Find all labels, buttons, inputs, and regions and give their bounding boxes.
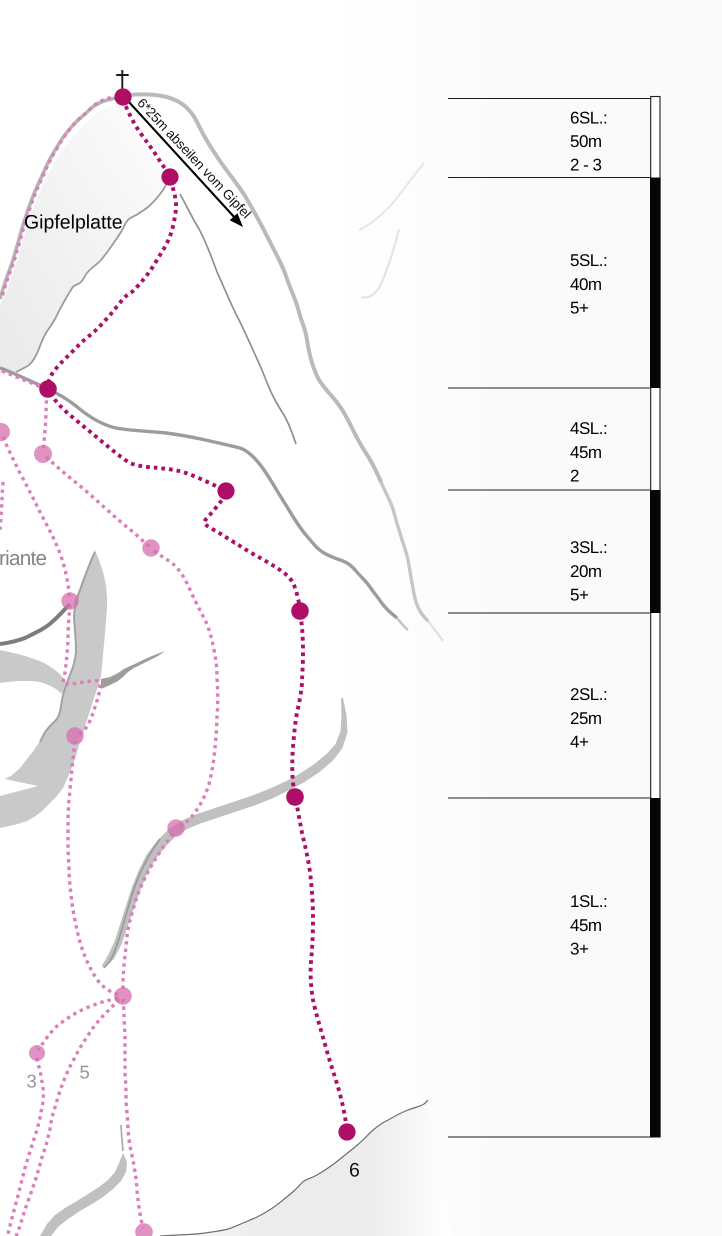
svg-text:25m: 25m [570, 709, 602, 728]
svg-text:45m: 45m [570, 443, 602, 462]
svg-text:riante: riante [0, 547, 47, 570]
svg-text:5: 5 [80, 1062, 90, 1083]
svg-text:40m: 40m [570, 275, 602, 294]
svg-text:5SL.:: 5SL.: [570, 251, 607, 270]
svg-text:2: 2 [570, 467, 579, 486]
svg-text:6: 6 [349, 1159, 360, 1181]
svg-text:5+: 5+ [570, 299, 589, 318]
svg-text:3: 3 [27, 1071, 37, 1092]
svg-text:3+: 3+ [570, 940, 589, 959]
svg-text:50m: 50m [570, 132, 602, 151]
svg-text:1SL.:: 1SL.: [570, 892, 607, 911]
svg-text:2 - 3: 2 - 3 [570, 156, 602, 175]
svg-text:Gipfelplatte: Gipfelplatte [24, 212, 123, 234]
svg-text:2SL.:: 2SL.: [570, 685, 607, 704]
svg-text:4SL.:: 4SL.: [570, 419, 607, 438]
svg-text:20m: 20m [570, 562, 602, 581]
svg-text:4+: 4+ [570, 733, 589, 752]
svg-text:5+: 5+ [570, 586, 589, 605]
svg-text:45m: 45m [570, 916, 602, 935]
svg-text:3SL.:: 3SL.: [570, 538, 607, 557]
svg-text:6SL.:: 6SL.: [570, 108, 607, 127]
